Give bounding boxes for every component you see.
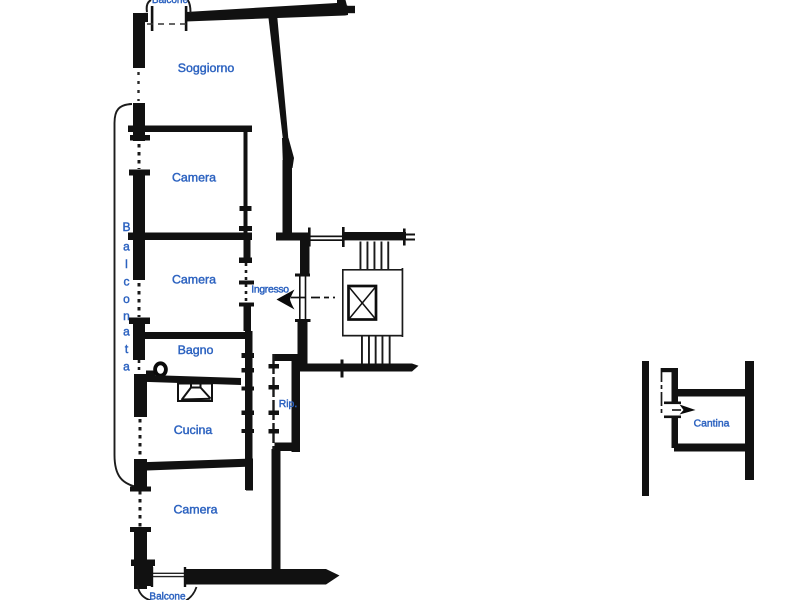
svg-text:c: c [124,275,130,289]
svg-text:Camera: Camera [173,503,217,517]
svg-text:l: l [125,257,128,271]
svg-text:a: a [123,325,130,339]
svg-text:Bagno: Bagno [178,343,214,357]
svg-text:Camera: Camera [172,170,216,184]
svg-text:Camera: Camera [172,273,216,287]
svg-text:a: a [123,360,130,374]
svg-text:Cucina: Cucina [174,423,213,437]
svg-text:Balcone: Balcone [152,0,189,6]
svg-text:B: B [122,220,130,234]
svg-text:a: a [123,240,130,254]
svg-text:o: o [123,292,130,306]
svg-text:Ingresso: Ingresso [251,285,289,296]
svg-text:Soggiorno: Soggiorno [178,61,235,75]
svg-text:Cantina: Cantina [694,419,730,430]
svg-text:n: n [123,309,130,323]
svg-text:Balcone: Balcone [149,592,186,601]
svg-text:Rip.: Rip. [279,399,297,410]
